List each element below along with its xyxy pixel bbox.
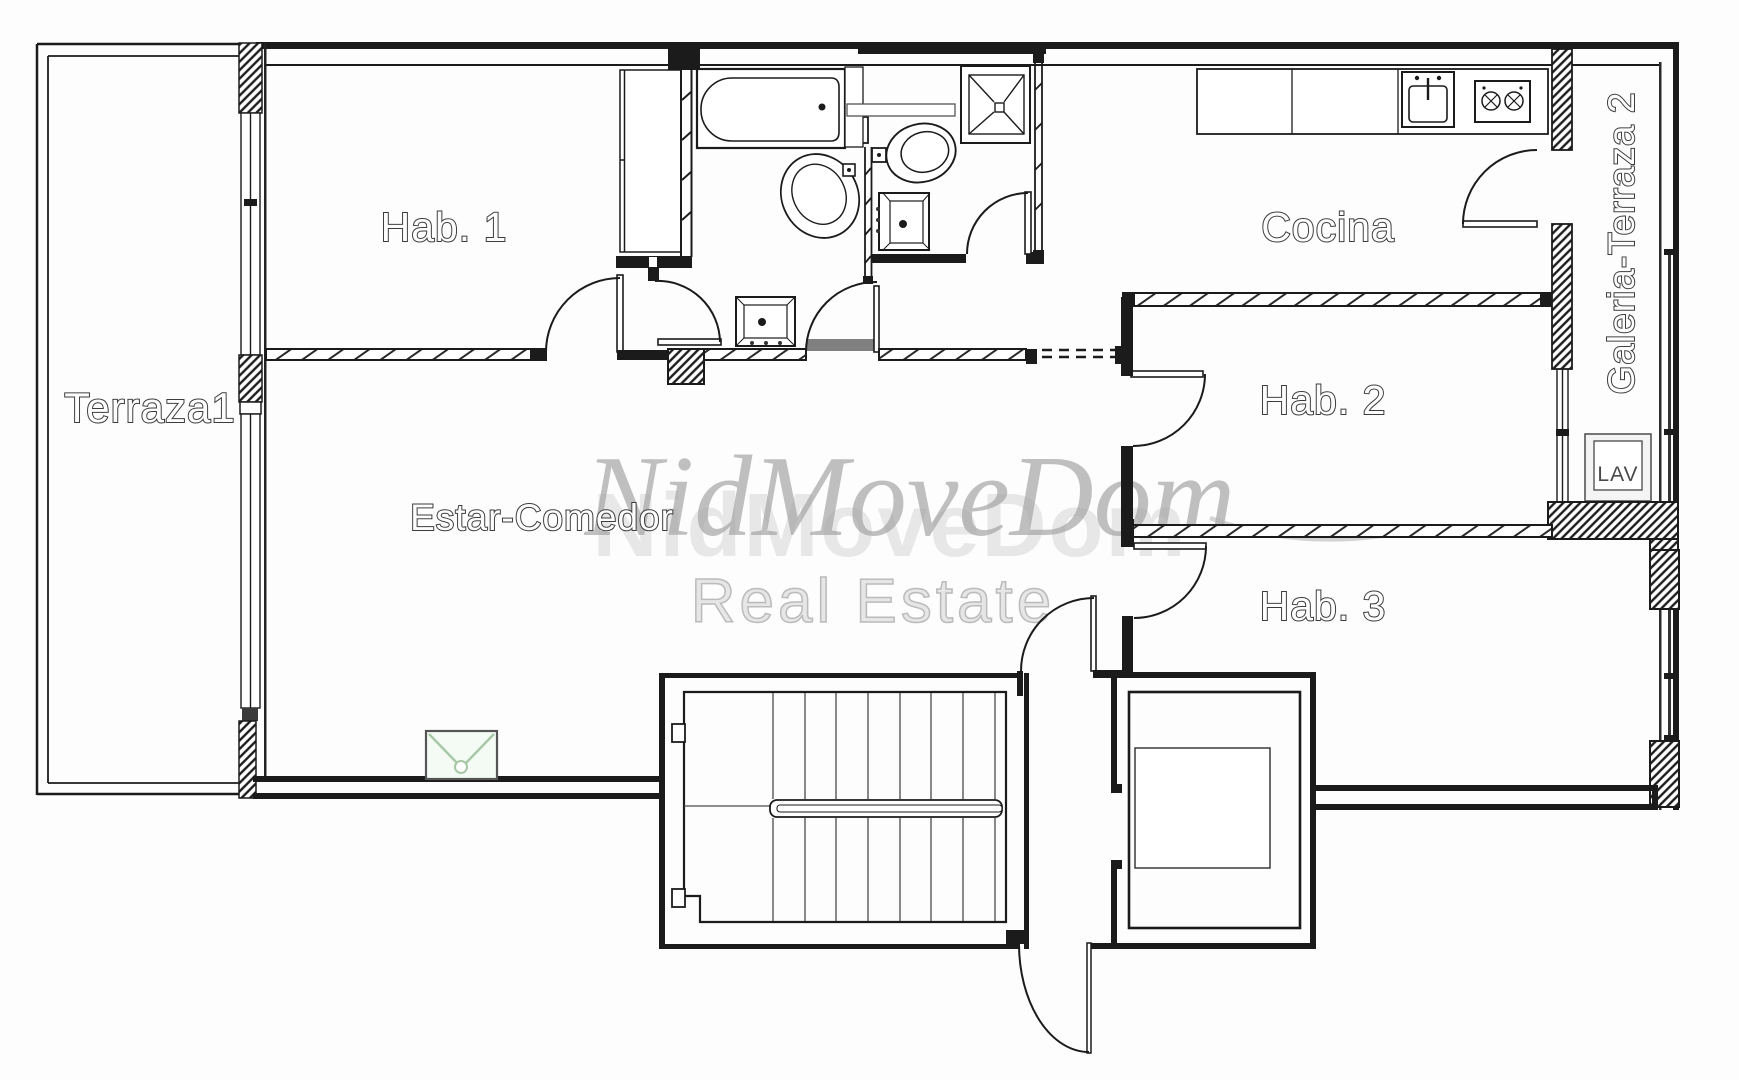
svg-text:Real Estate: Real Estate — [691, 567, 1056, 636]
svg-text:Cocina: Cocina — [1261, 204, 1395, 250]
svg-text:Hab. 2: Hab. 2 — [1260, 377, 1387, 423]
svg-text:Terraza1: Terraza1 — [64, 384, 235, 431]
svg-text:NidMoveDom: NidMoveDom — [584, 433, 1236, 561]
svg-text:Hab. 3: Hab. 3 — [1260, 583, 1387, 629]
svg-text:Estar-Comedor: Estar-Comedor — [410, 497, 674, 538]
svg-text:Hab. 1: Hab. 1 — [381, 204, 508, 250]
svg-text:Galeria-Terraza 2: Galeria-Terraza 2 — [1601, 92, 1642, 395]
svg-text:LAV: LAV — [1597, 463, 1638, 486]
